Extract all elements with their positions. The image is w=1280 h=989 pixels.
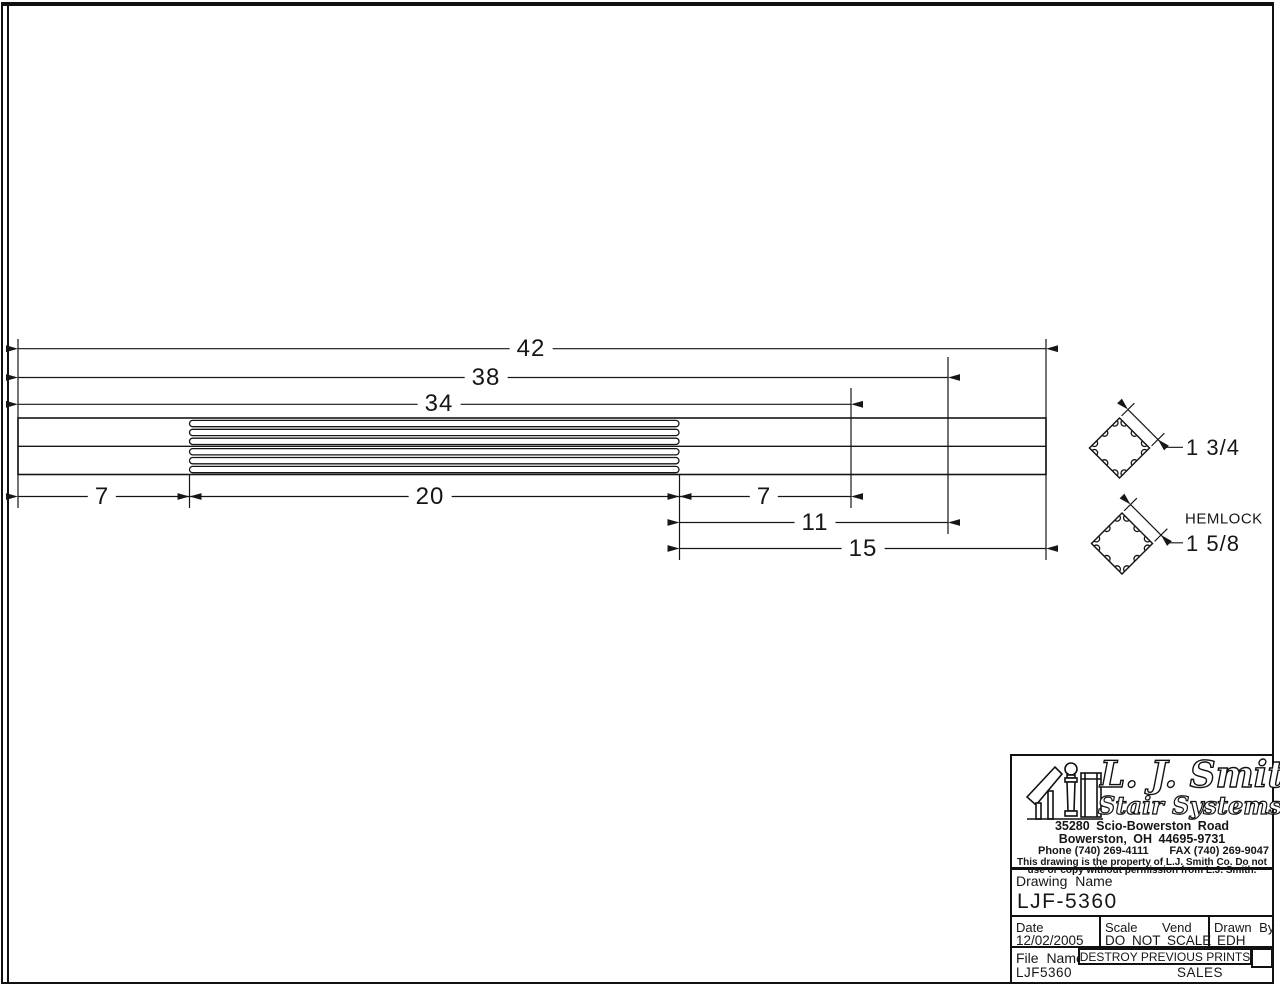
- drawn-by-value: EDH: [1217, 933, 1246, 948]
- dim-label-right-square: 7: [750, 485, 778, 509]
- drawing-sheet: 42 38 34 7 20 7 11 15 1 3/4 HEMLOCK 1 5/…: [0, 0, 1280, 989]
- dim-label-34: 34: [418, 392, 461, 416]
- fax-number: FAX (740) 269-9047: [1169, 846, 1269, 857]
- destroy-prints-stamp: DESTROY PREVIOUS PRINTS: [1078, 948, 1252, 965]
- empty-revision-box: [1251, 948, 1273, 968]
- phone-number: Phone (740) 269-4111: [1038, 846, 1149, 857]
- file-name-value: LJF5360: [1016, 965, 1072, 980]
- brand-name: L. J. Smith: [1100, 757, 1272, 793]
- dim-label-11: 11: [795, 511, 836, 535]
- scale-value: DO NOT SCALE: [1105, 933, 1211, 948]
- file-name-label: File Name: [1016, 950, 1084, 966]
- section-size-label-top: 1 3/4: [1186, 437, 1240, 459]
- dim-label-overall: 42: [510, 337, 553, 361]
- dim-label-15: 15: [842, 537, 885, 561]
- sales-label: SALES: [1177, 965, 1223, 980]
- dim-label-38: 38: [465, 366, 508, 390]
- title-block: L. J. Smith Stair Systems 35280 Scio-Bow…: [1010, 754, 1274, 984]
- drawing-name-label: Drawing Name: [1016, 873, 1113, 889]
- cross-section-bottom: [1092, 498, 1184, 574]
- drawing-name-section: Drawing Name LJF-5360: [1012, 870, 1272, 917]
- material-label: HEMLOCK: [1185, 511, 1263, 526]
- title-block-logo-section: L. J. Smith Stair Systems 35280 Scio-Bow…: [1012, 756, 1272, 870]
- dim-label-flute-length: 20: [409, 485, 452, 509]
- date-cell: Date 12/02/2005: [1012, 917, 1101, 946]
- drawn-by-cell: Drawn By EDH: [1210, 917, 1272, 946]
- meta-row: Date 12/02/2005 Scale Vend DO NOT SCALE …: [1012, 917, 1272, 948]
- stair-newel-logo-icon: [1025, 759, 1105, 823]
- address-line-1: 35280 Scio-Bowerston Road: [1012, 820, 1272, 833]
- scale-cell: Scale Vend DO NOT SCALE: [1101, 917, 1210, 946]
- phone-fax-row: Phone (740) 269-4111 FAX (740) 269-9047: [1038, 846, 1269, 857]
- cross-section-top: [1090, 403, 1184, 478]
- baluster-body: [18, 418, 1046, 475]
- drawing-name-value: LJF-5360: [1017, 890, 1118, 914]
- date-value: 12/02/2005: [1016, 933, 1084, 948]
- dim-label-left-square: 7: [88, 485, 116, 509]
- section-size-label-bottom: 1 5/8: [1186, 533, 1240, 555]
- brand-tagline: Stair Systems: [1098, 794, 1276, 818]
- file-name-section: File Name LJF5360 DESTROY PREVIOUS PRINT…: [1012, 948, 1272, 981]
- address-line-2: Bowerston, OH 44695-9731: [1012, 833, 1272, 846]
- extension-lines: [18, 339, 1046, 560]
